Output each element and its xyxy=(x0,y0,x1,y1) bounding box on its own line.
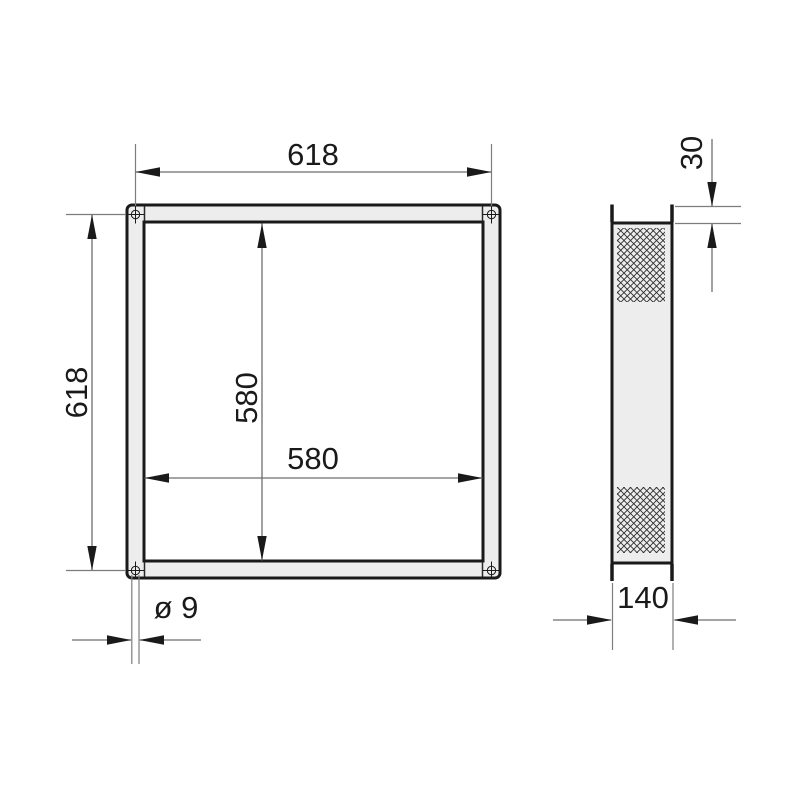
dim-outer-width: 618 xyxy=(136,137,492,206)
front-view xyxy=(127,205,501,580)
dim-label-inner-width: 580 xyxy=(287,441,339,476)
dim-outer-height: 618 xyxy=(59,215,126,571)
dim-depth: 140 xyxy=(553,580,736,650)
arrowhead-right-icon xyxy=(467,167,492,176)
foam-pad-hatch-bottom xyxy=(617,487,665,553)
dim-label-flange-offset: 30 xyxy=(674,136,709,170)
foam-pad-hatch-top xyxy=(617,228,665,302)
arrowhead-down-icon xyxy=(87,546,96,571)
arrowhead-right-icon xyxy=(107,635,132,644)
arrowhead-left-icon xyxy=(674,615,699,624)
side-view xyxy=(612,205,672,582)
dim-label-depth: 140 xyxy=(617,580,669,615)
dim-label-hole-diameter: ø 9 xyxy=(154,590,199,625)
arrowhead-up-icon xyxy=(707,224,716,249)
drawing-page: 618 618 580 580 ø 9 xyxy=(0,0,800,800)
dim-label-outer-height: 618 xyxy=(59,367,94,419)
arrowhead-up-icon xyxy=(87,215,96,240)
arrowhead-down-icon xyxy=(707,182,716,207)
dim-flange-offset: 30 xyxy=(674,136,741,292)
dim-hole-diameter: ø 9 xyxy=(72,575,201,664)
dim-label-outer-width: 618 xyxy=(287,137,339,172)
arrowhead-right-icon xyxy=(587,615,612,624)
front-inner-opening xyxy=(144,222,483,561)
arrowhead-left-icon xyxy=(139,635,164,644)
dim-label-inner-height: 580 xyxy=(229,372,264,424)
technical-drawing-canvas: 618 618 580 580 ø 9 xyxy=(0,0,800,800)
arrowhead-left-icon xyxy=(136,167,161,176)
